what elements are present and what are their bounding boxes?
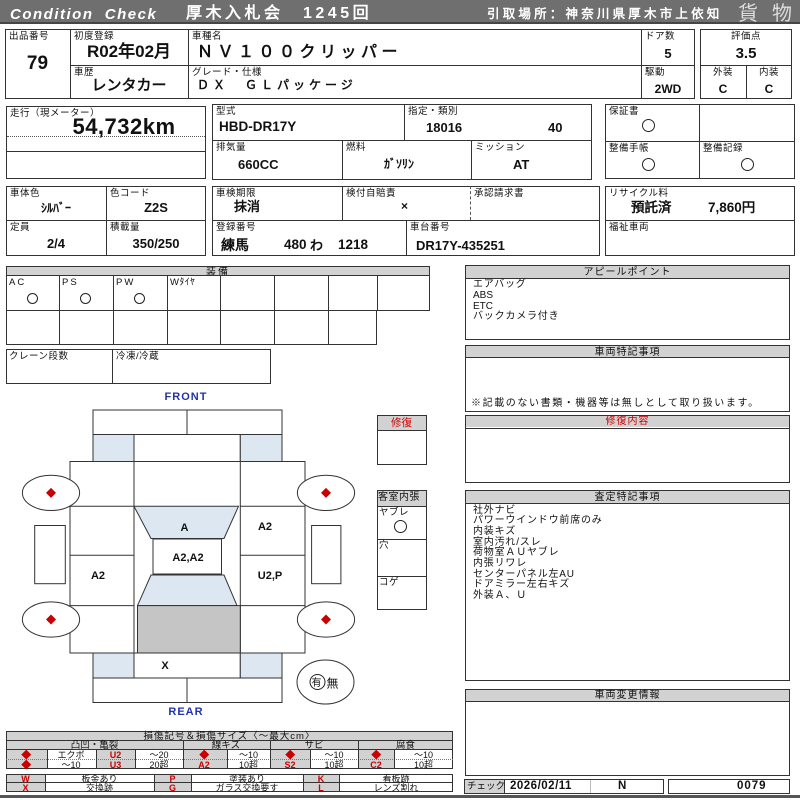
svg-text:A: A [181, 522, 189, 534]
svg-text:A2: A2 [258, 521, 272, 533]
svg-text:X: X [161, 660, 169, 672]
svg-text:A2: A2 [91, 570, 105, 582]
svg-text:A2,A2: A2,A2 [172, 552, 203, 564]
svg-text:U2,P: U2,P [258, 570, 282, 582]
svg-text:有: 有 [312, 676, 322, 689]
svg-text:無: 無 [326, 676, 338, 691]
